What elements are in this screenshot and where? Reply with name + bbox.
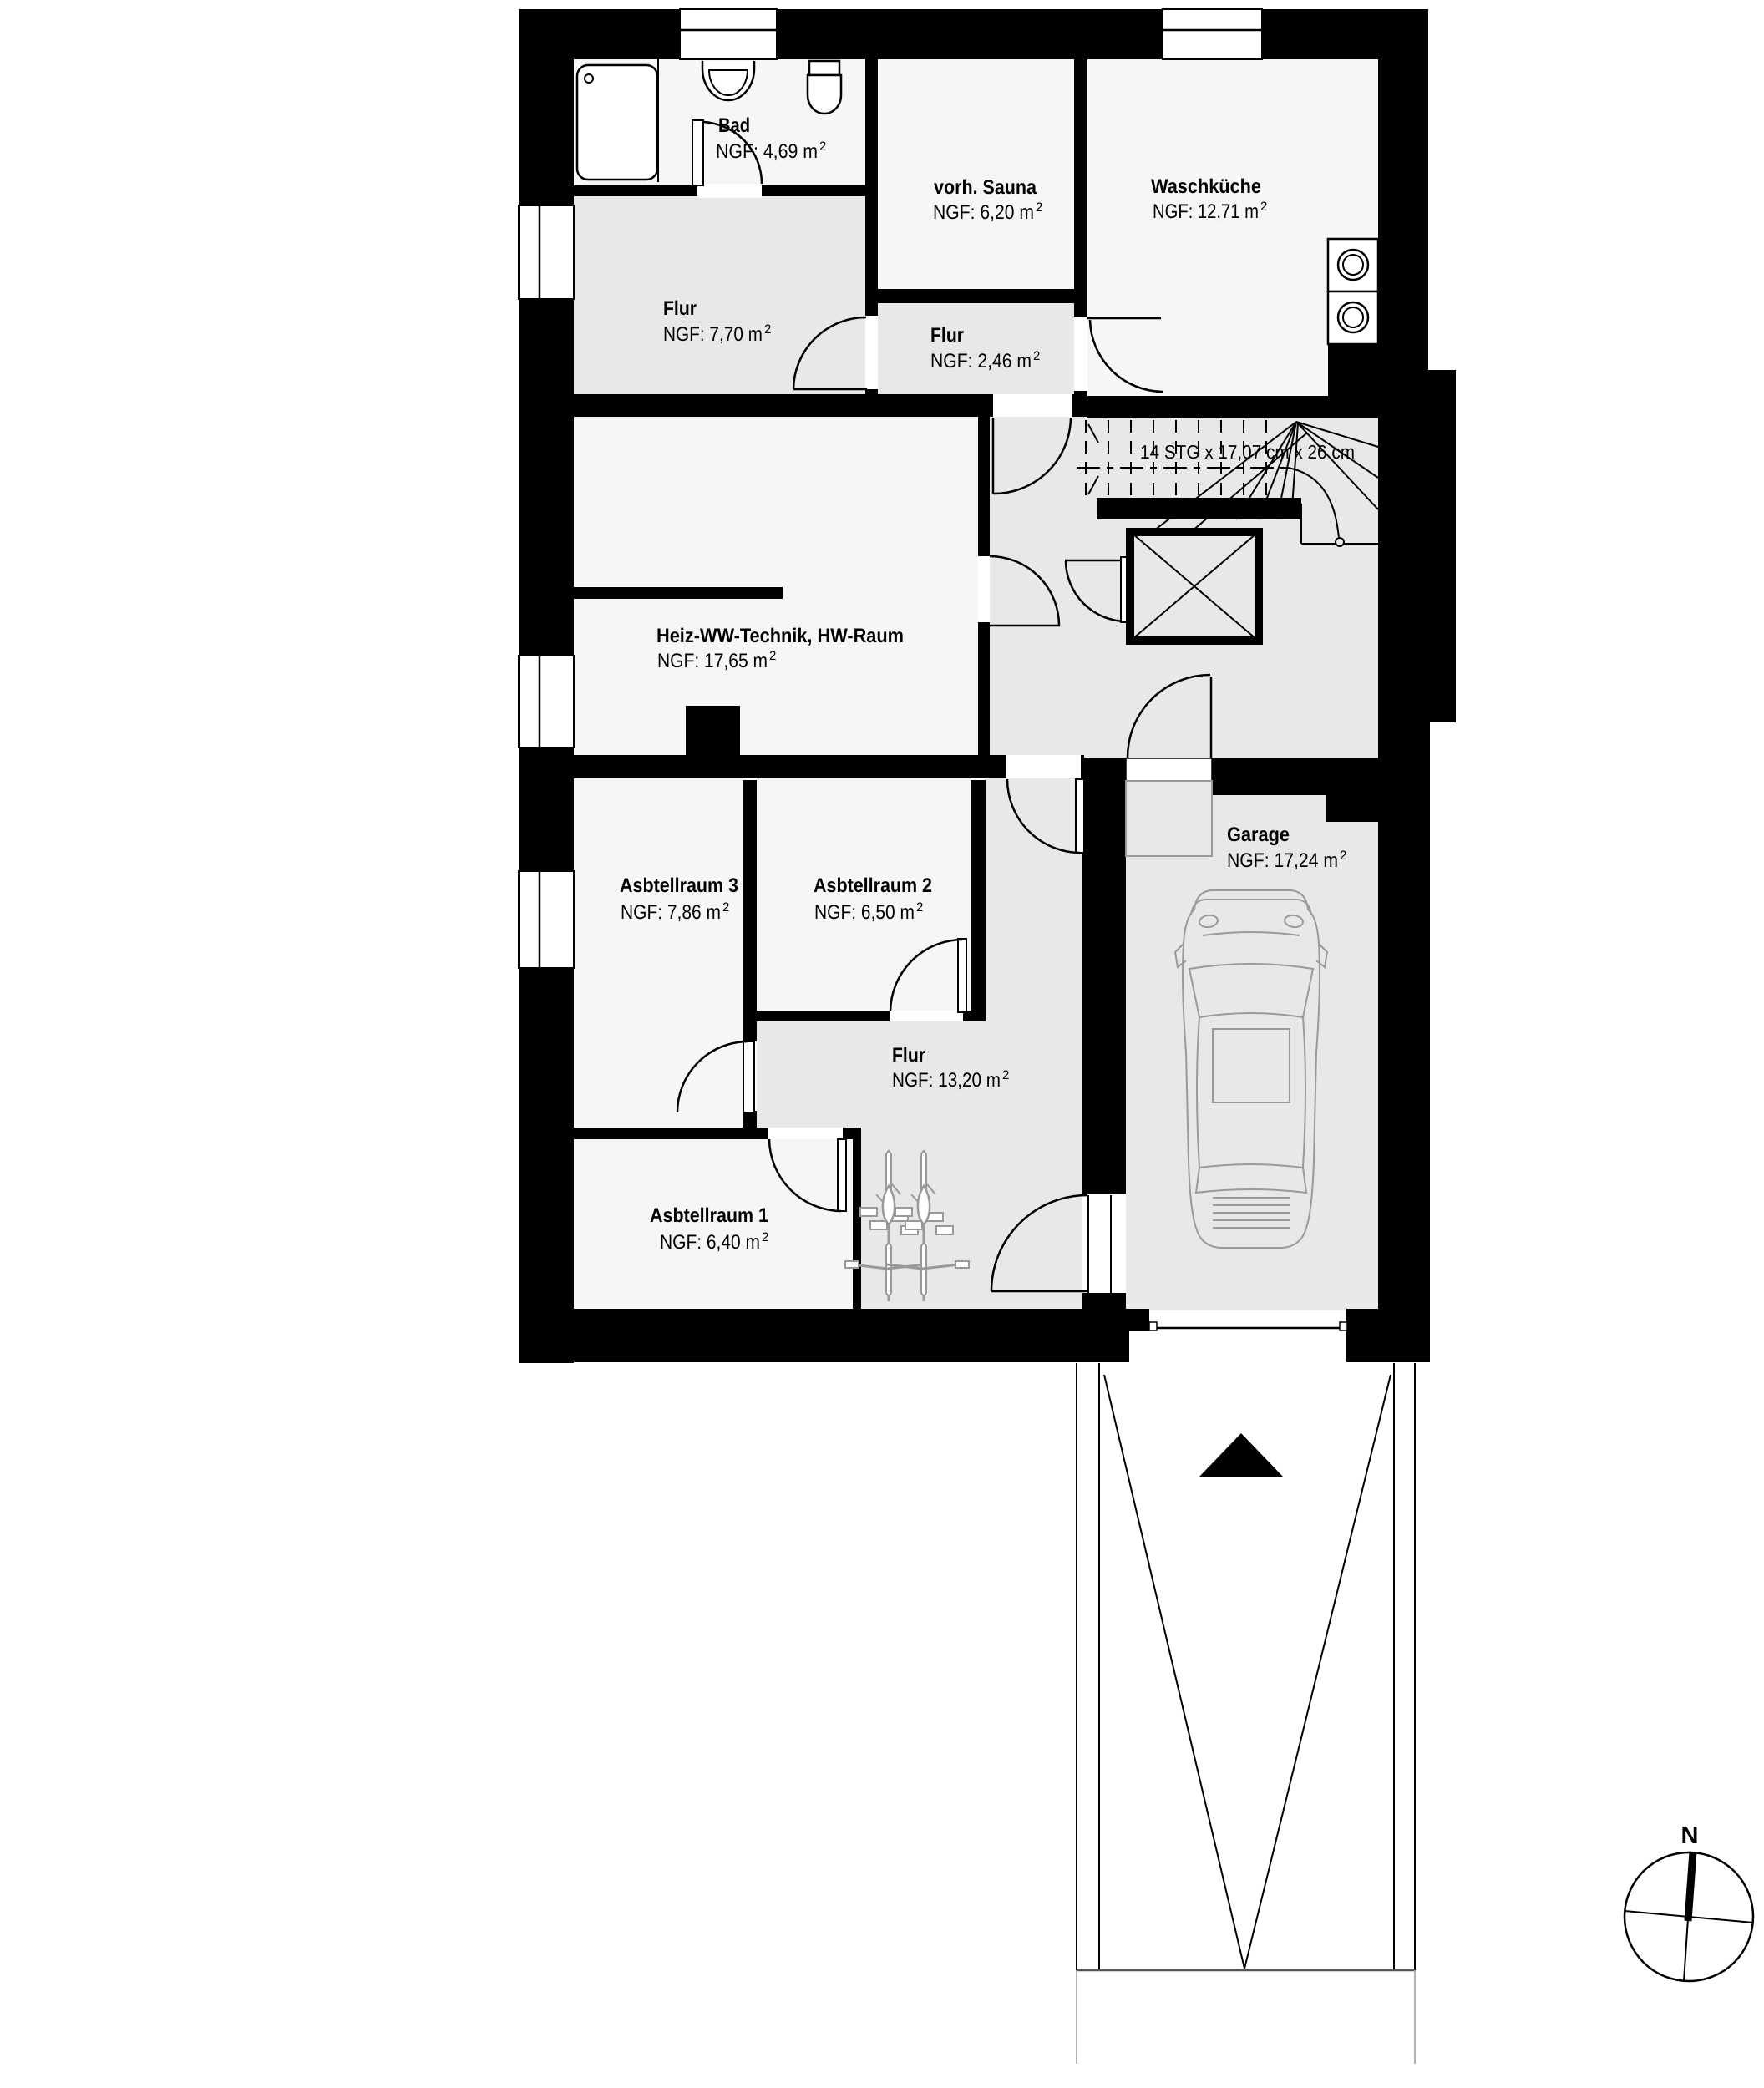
svg-text:Waschküche: Waschküche — [1151, 175, 1261, 198]
svg-text:NGF: 4,69 m: NGF: 4,69 m — [716, 140, 818, 163]
svg-text:2: 2 — [1036, 200, 1042, 215]
svg-text:2: 2 — [722, 900, 729, 915]
svg-text:Asbtellraum 1: Asbtellraum 1 — [650, 1204, 768, 1227]
svg-text:vorh. Sauna: vorh. Sauna — [934, 176, 1037, 199]
svg-text:2: 2 — [769, 649, 776, 663]
svg-text:Asbtellraum 3: Asbtellraum 3 — [620, 874, 738, 897]
svg-text:2: 2 — [1002, 1068, 1009, 1082]
svg-text:2: 2 — [762, 1230, 768, 1244]
svg-text:Bad: Bad — [718, 114, 750, 137]
svg-text:N: N — [1681, 1822, 1699, 1849]
svg-text:14 STG x 17,07 cm x 26 cm: 14 STG x 17,07 cm x 26 cm — [1140, 441, 1355, 463]
svg-text:NGF: 6,20 m: NGF: 6,20 m — [933, 201, 1034, 224]
svg-text:NGF: 6,50 m: NGF: 6,50 m — [814, 901, 915, 924]
svg-text:NGF: 17,24 m: NGF: 17,24 m — [1227, 849, 1338, 872]
svg-text:NGF: 7,86 m: NGF: 7,86 m — [621, 901, 721, 924]
svg-text:Flur: Flur — [930, 324, 964, 347]
svg-text:Heiz-WW-Technik, HW-Raum: Heiz-WW-Technik, HW-Raum — [656, 625, 904, 647]
svg-text:Flur: Flur — [892, 1044, 925, 1067]
svg-text:2: 2 — [1260, 200, 1267, 214]
svg-text:NGF: 17,65 m: NGF: 17,65 m — [657, 650, 768, 672]
svg-text:NGF: 2,46 m: NGF: 2,46 m — [930, 350, 1032, 372]
svg-text:NGF: 7,70 m: NGF: 7,70 m — [663, 323, 763, 346]
svg-text:2: 2 — [1033, 349, 1040, 363]
svg-text:Garage: Garage — [1227, 824, 1290, 846]
svg-text:NGF: 6,40 m: NGF: 6,40 m — [660, 1231, 760, 1254]
svg-text:2: 2 — [764, 322, 771, 337]
svg-text:2: 2 — [916, 900, 923, 915]
svg-text:NGF: 13,20 m: NGF: 13,20 m — [892, 1069, 1001, 1092]
svg-text:NGF: 12,71 m: NGF: 12,71 m — [1153, 200, 1259, 223]
svg-text:Asbtellraum 2: Asbtellraum 2 — [814, 874, 932, 897]
svg-text:Flur: Flur — [663, 297, 697, 320]
svg-text:2: 2 — [819, 139, 826, 154]
svg-text:2: 2 — [1340, 849, 1346, 863]
